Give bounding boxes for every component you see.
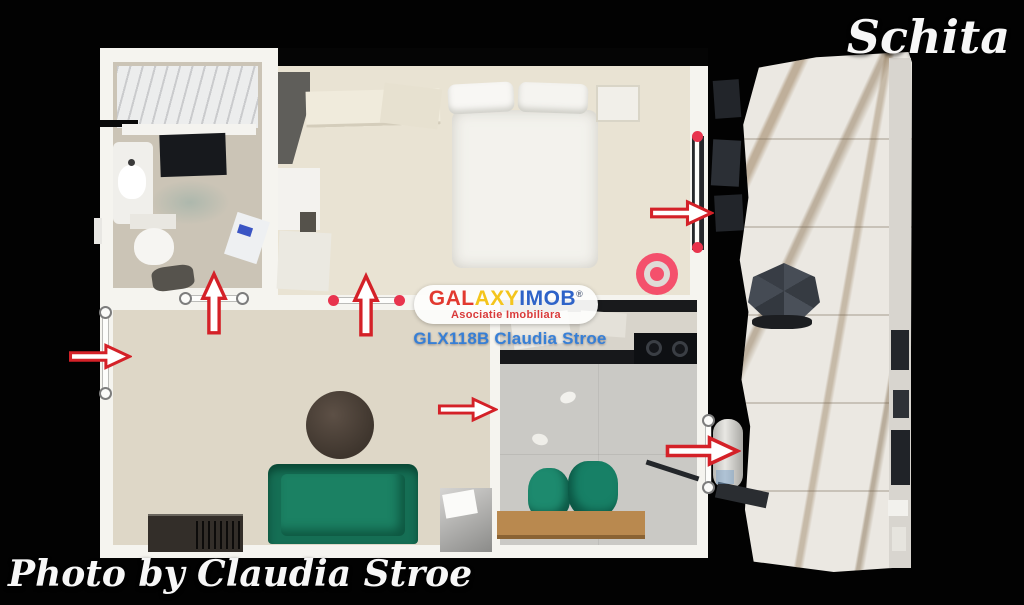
dining-table bbox=[497, 511, 645, 539]
arrow-right-icon[interactable] bbox=[68, 341, 132, 372]
brand-segment-blue: IMOB bbox=[519, 287, 576, 310]
balcony-window bbox=[891, 330, 909, 370]
dark-object bbox=[713, 79, 742, 119]
arrow-right-icon[interactable] bbox=[664, 435, 741, 467]
screenshot-scene: GALAXYIMOB® Asociatie Imobiliara GLX118B… bbox=[0, 0, 1024, 605]
bath-mat bbox=[159, 133, 226, 177]
bedroom-chair bbox=[300, 212, 316, 232]
dark-object bbox=[711, 139, 741, 186]
balcony-window bbox=[891, 430, 910, 485]
brand-logo: GALAXYIMOB® bbox=[429, 288, 583, 310]
arrow-up-icon[interactable] bbox=[200, 270, 228, 336]
red-dot-icon[interactable] bbox=[328, 295, 339, 306]
wall-stub bbox=[94, 218, 102, 244]
balcony-right-wall bbox=[889, 58, 911, 568]
burner bbox=[672, 341, 688, 357]
faucet bbox=[128, 159, 135, 166]
circle-handle-icon[interactable] bbox=[179, 292, 192, 305]
shower-area bbox=[117, 66, 258, 128]
toilet-bowl bbox=[134, 228, 174, 265]
sofa-seat bbox=[281, 474, 405, 536]
green-chair bbox=[568, 461, 618, 517]
toilet-tank bbox=[130, 214, 176, 229]
watermark-pill: GALAXYIMOB® Asociatie Imobiliara bbox=[414, 285, 598, 324]
circle-handle-icon[interactable] bbox=[99, 387, 112, 400]
circle-handle-icon[interactable] bbox=[99, 306, 112, 319]
table-shadow bbox=[752, 315, 812, 329]
listing-code: GLX118B Claudia Stroe bbox=[408, 329, 612, 349]
sink-basin bbox=[118, 165, 146, 199]
dark-object bbox=[714, 194, 744, 231]
balcony-window bbox=[893, 390, 909, 418]
window-marker-line bbox=[695, 140, 699, 246]
red-dot-icon[interactable] bbox=[394, 295, 405, 306]
circle-handle-icon[interactable] bbox=[236, 292, 249, 305]
wall-notch-top bbox=[278, 48, 708, 66]
coffee-table bbox=[306, 391, 374, 459]
red-dot-icon[interactable] bbox=[692, 131, 703, 142]
bullseye-icon[interactable] bbox=[636, 253, 678, 295]
balcony-appliance bbox=[892, 527, 906, 551]
brand-subtitle: Asociatie Imobiliara bbox=[451, 310, 561, 322]
photo-credit: Photo by Claudia Stroe bbox=[8, 553, 472, 595]
nightstand bbox=[596, 85, 640, 122]
registered-mark: ® bbox=[576, 289, 583, 299]
burner bbox=[646, 340, 662, 356]
arrow-right-icon[interactable] bbox=[437, 394, 498, 425]
blue-patch bbox=[716, 470, 734, 484]
bullseye-core bbox=[650, 267, 664, 281]
bed-mattress bbox=[452, 110, 598, 268]
red-dot-icon[interactable] bbox=[692, 242, 703, 253]
circle-handle-icon[interactable] bbox=[702, 481, 715, 494]
pillow bbox=[517, 82, 588, 114]
pillow bbox=[447, 81, 514, 114]
bedroom-dresser bbox=[277, 231, 332, 292]
wardrobe-top-2 bbox=[380, 83, 442, 130]
brand-segment-red: GAL bbox=[429, 287, 475, 310]
page-title: Schita bbox=[847, 10, 1010, 64]
balcony-appliance bbox=[888, 500, 908, 516]
arrow-right-icon[interactable] bbox=[649, 198, 714, 228]
brand-segment-yellow: AXY bbox=[475, 287, 520, 310]
arrow-up-icon[interactable] bbox=[352, 271, 380, 339]
circle-handle-icon[interactable] bbox=[702, 414, 715, 427]
tv-cabinet-grille bbox=[196, 521, 240, 549]
